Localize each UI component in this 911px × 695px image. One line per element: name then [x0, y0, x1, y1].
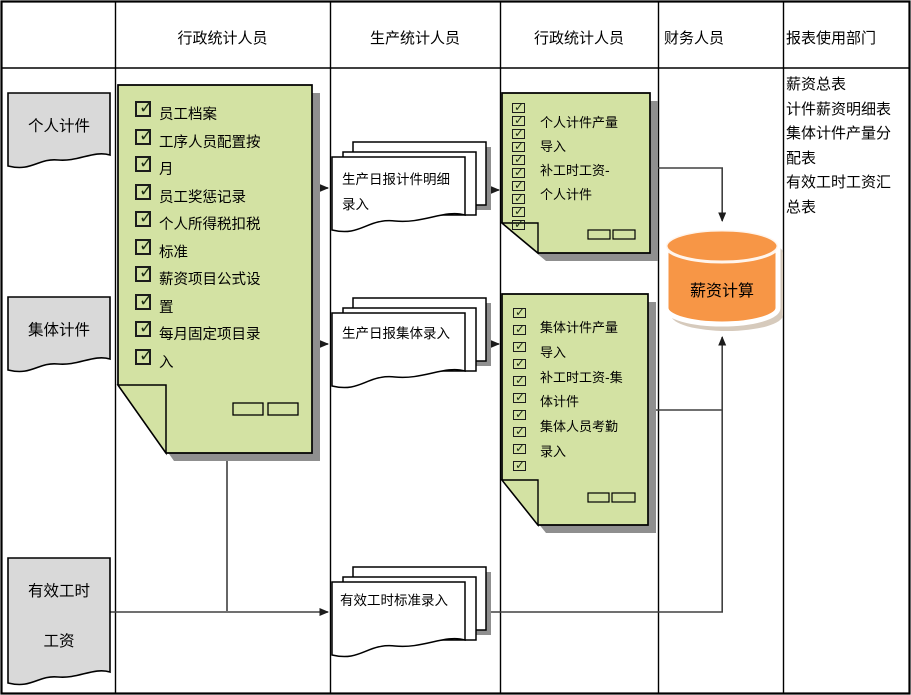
checkbox-checked-icon: ✓	[513, 410, 526, 420]
checkbox-checked-icon: ✓	[512, 155, 525, 165]
checklist-item: 体计件	[540, 391, 623, 416]
label-doc-effective-hours	[8, 558, 110, 685]
lane-header-production-stats: 生产统计人员	[330, 28, 500, 48]
checkbox-checked-icon: ✓	[513, 342, 526, 352]
report-item: 计件薪资明细表	[786, 97, 891, 122]
checklist-item: 个人计件产量	[540, 112, 618, 136]
report-item: 配表	[786, 146, 891, 171]
checklist-item: 集体计件产量	[540, 317, 623, 342]
checkbox-checked-icon: ✓	[135, 294, 151, 310]
checkbox-checked-icon: ✓	[513, 376, 526, 386]
checklist-item: 月	[159, 157, 261, 185]
checklist-item: 集体人员考勤	[540, 416, 623, 441]
row-label-collective-piece: 集体计件	[8, 318, 110, 340]
checklist-item: 薪资项目公式设	[159, 267, 261, 295]
checklist-item: 每月固定项目录	[159, 322, 261, 350]
lane-header-report-users: 报表使用部门	[786, 28, 906, 48]
checklist-item: 个人所得税扣税	[159, 212, 261, 240]
checkbox-checked-icon: ✓	[513, 461, 526, 471]
cylinder-top	[666, 230, 778, 262]
checklist-item: 录入	[540, 441, 623, 466]
checkbox-checked-icon: ✓	[513, 359, 526, 369]
checkbox-checked-icon: ✓	[512, 142, 525, 152]
admin-setup-checkbox-column: ✓ ✓ ✓ ✓ ✓ ✓ ✓ ✓ ✓ ✓	[135, 101, 151, 376]
checkbox-checked-icon: ✓	[135, 101, 151, 117]
report-item: 有效工时工资汇	[786, 170, 891, 195]
checkbox-checked-icon: ✓	[513, 444, 526, 454]
checklist-item: 补工时工资-	[540, 160, 618, 184]
database-label: 薪资计算	[664, 277, 780, 301]
report-item: 集体计件产量分	[786, 121, 891, 146]
lane-header-admin-stats-2: 行政统计人员	[500, 28, 658, 48]
checkbox-checked-icon: ✓	[512, 129, 525, 139]
checkbox-checked-icon: ✓	[513, 325, 526, 335]
checkbox-checked-icon: ✓	[135, 266, 151, 282]
checkbox-checked-icon: ✓	[135, 156, 151, 172]
personal-entry-checkbox-column: ✓ ✓ ✓ ✓ ✓ ✓ ✓ ✓ ✓ ✓	[512, 103, 525, 233]
report-list: 薪资总表 计件薪资明细表 集体计件产量分 配表 有效工时工资汇 总表	[786, 72, 891, 220]
swimlane-flow-diagram: 行政统计人员 生产统计人员 行政统计人员 财务人员 报表使用部门 个人计件 集体…	[0, 0, 911, 695]
doc-effective-hours-label: 有效工时标准录入	[340, 589, 448, 614]
doc-text-line: 录入	[342, 193, 450, 218]
checklist-item: 工序人员配置按	[159, 130, 261, 158]
checklist-item: 导入	[540, 136, 618, 160]
checkbox-checked-icon: ✓	[135, 211, 151, 227]
checkbox-checked-icon: ✓	[512, 220, 525, 230]
checkbox-checked-icon: ✓	[512, 168, 525, 178]
checkbox-checked-icon: ✓	[513, 427, 526, 437]
admin-setup-checklist: 员工档案 工序人员配置按 月 员工奖惩记录 个人所得税扣税 标准 薪资项目公式设…	[159, 102, 261, 377]
checklist-item: 补工时工资-集	[540, 367, 623, 392]
doc-text-line: 生产日报集体录入	[342, 322, 450, 347]
checkbox-checked-icon: ✓	[135, 129, 151, 145]
doc-text-line: 有效工时标准录入	[340, 589, 448, 614]
row-label-personal-piece: 个人计件	[8, 114, 110, 136]
checklist-item: 员工档案	[159, 102, 261, 130]
checkbox-checked-icon: ✓	[513, 393, 526, 403]
doc-collective-label: 生产日报集体录入	[342, 322, 450, 347]
doc-text-line: 生产日报计件明细	[342, 168, 450, 193]
row-label-effective-hours-line2: 工资	[8, 629, 110, 651]
checklist-item: 入	[159, 350, 261, 378]
checkbox-checked-icon: ✓	[512, 194, 525, 204]
lane-header-admin-stats-1: 行政统计人员	[115, 28, 330, 48]
checklist-item: 员工奖惩记录	[159, 185, 261, 213]
row-label-effective-hours-line1: 有效工时	[8, 579, 110, 601]
checklist-item: 置	[159, 295, 261, 323]
checkbox-checked-icon: ✓	[512, 103, 525, 113]
checkbox-checked-icon: ✓	[135, 349, 151, 365]
report-item: 薪资总表	[786, 72, 891, 97]
checklist-item: 个人计件	[540, 184, 618, 208]
personal-entry-checklist: 个人计件产量 导入 补工时工资- 个人计件	[540, 112, 618, 208]
checkbox-checked-icon: ✓	[135, 239, 151, 255]
checkbox-checked-icon: ✓	[135, 184, 151, 200]
checkbox-checked-icon: ✓	[512, 116, 525, 126]
checkbox-checked-icon: ✓	[512, 207, 525, 217]
report-item: 总表	[786, 195, 891, 220]
checklist-item: 导入	[540, 342, 623, 367]
lane-header-finance: 财务人员	[664, 28, 779, 48]
checkbox-checked-icon: ✓	[513, 308, 526, 318]
doc-piece-detail-label: 生产日报计件明细 录入	[342, 168, 450, 218]
collective-entry-checklist: 集体计件产量 导入 补工时工资-集 体计件 集体人员考勤 录入	[540, 317, 623, 466]
checkbox-checked-icon: ✓	[512, 181, 525, 191]
collective-entry-checkbox-column: ✓ ✓ ✓ ✓ ✓ ✓ ✓ ✓ ✓ ✓	[513, 308, 526, 478]
checklist-item: 标准	[159, 240, 261, 268]
checkbox-checked-icon: ✓	[135, 321, 151, 337]
